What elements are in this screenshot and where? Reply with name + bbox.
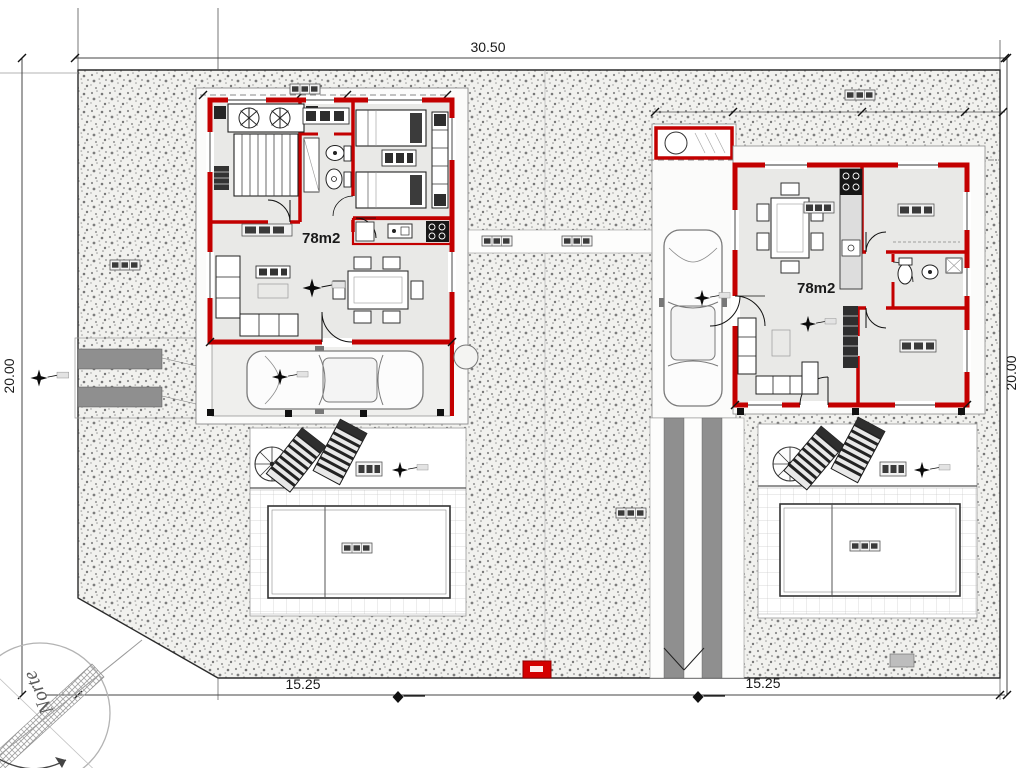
bedroom-br — [900, 340, 936, 352]
left-house-area-label: 78m2 — [302, 230, 340, 247]
dim-plot-width: 30.50 — [470, 39, 505, 55]
entry-arrow-icon — [393, 691, 426, 703]
patio-table — [880, 462, 906, 476]
dim-lot-right: 15.25 — [745, 675, 780, 691]
site-plan-svg: 30.50 20.00 20.00 15.25 15.25 — [0, 0, 1024, 768]
right-kitchen — [840, 169, 862, 289]
column-icon — [454, 345, 478, 369]
dim-lot-left: 15.25 — [285, 676, 320, 692]
dimension-bottom: 15.25 15.25 — [45, 675, 1005, 703]
bathroom-fixtures — [303, 108, 351, 192]
patio-table — [356, 462, 382, 476]
right-pool-courtyard — [758, 417, 977, 618]
floor-plan-canvas: 30.50 20.00 20.00 15.25 15.25 — [0, 0, 1024, 768]
entry-arrow-icon — [693, 691, 726, 703]
hall-cabinet — [242, 224, 292, 236]
right-house: 78m2 — [710, 146, 985, 415]
utility-box — [890, 654, 914, 667]
car-icon — [247, 346, 423, 414]
dim-depth-right: 20.00 — [1003, 355, 1019, 390]
right-pool — [780, 504, 960, 596]
dimension-right: 20.00 — [1003, 54, 1019, 699]
dimension-left: 20.00 — [1, 54, 69, 699]
right-house-area-label: 78m2 — [797, 280, 835, 297]
water-tank-icon — [665, 132, 687, 154]
dimension-top: 30.50 — [71, 8, 1009, 70]
left-pool-courtyard — [250, 419, 466, 616]
left-house: 78m2 — [196, 84, 478, 424]
dim-depth-left: 20.00 — [1, 358, 17, 393]
north-arrow — [0, 664, 104, 768]
car-icon — [659, 230, 727, 406]
entry-walkway — [455, 230, 658, 253]
left-pool — [268, 506, 450, 598]
north-compass-icon: Norte — [0, 640, 142, 768]
level-marker-icon — [30, 369, 68, 386]
sideboard — [804, 202, 834, 213]
